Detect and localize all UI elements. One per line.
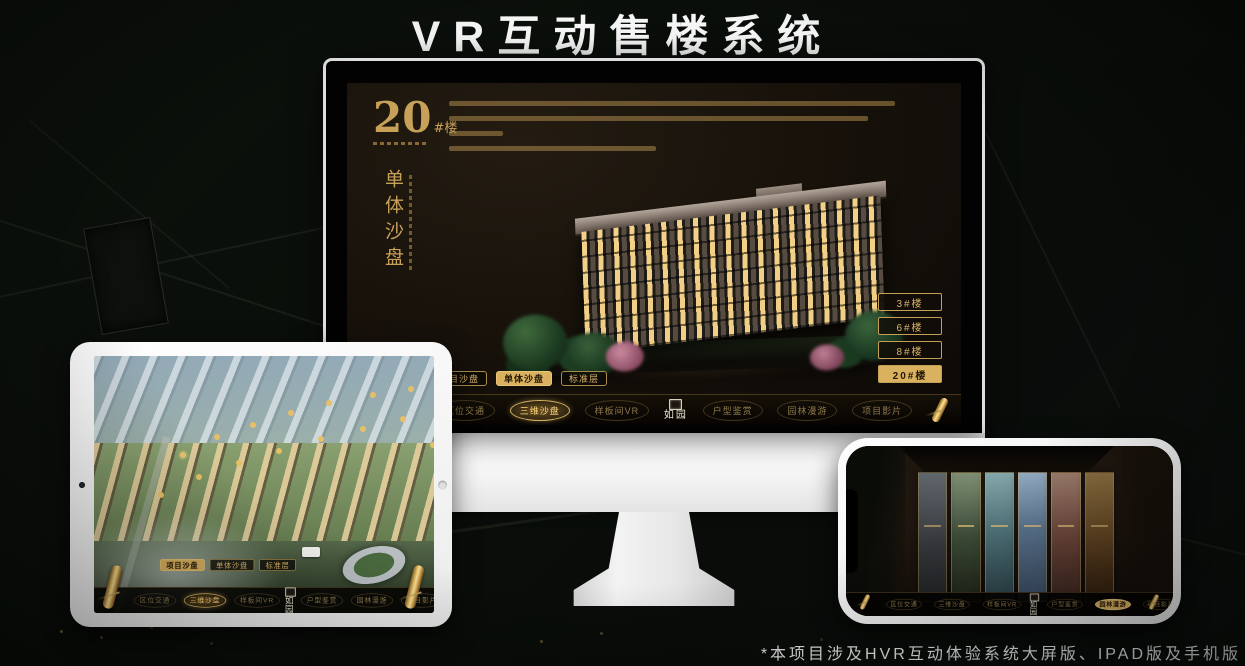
poster-canvas: VR互动售楼系统 20#楼 单体沙盘 [0, 0, 1245, 666]
background-plaque [83, 217, 169, 335]
scroll-tube [102, 564, 123, 609]
scroll-menu-icon[interactable] [1146, 595, 1162, 610]
interior-beam-silhouette [898, 446, 1114, 472]
nav-item-project-film[interactable]: 项目影片 [852, 400, 912, 421]
subtab-standard-floor[interactable]: 标准层 [259, 559, 296, 571]
sales-app-tablet-screen: 项目沙盘 单体沙盘 标准层 区位交通 三维沙盘 样板间VR 如园 户型鉴赏 园林… [94, 356, 434, 613]
gallery-panel[interactable] [985, 472, 1014, 602]
nav-item-3d-sandtable[interactable]: 三维沙盘 [934, 599, 970, 610]
floor-button-8[interactable]: 8#楼 [878, 341, 942, 359]
logo-seal-icon [669, 399, 682, 410]
floor-button-6[interactable]: 6#楼 [878, 317, 942, 335]
nav-item-floorplan[interactable]: 户型鉴赏 [1047, 599, 1083, 610]
scroll-menu-icon[interactable] [98, 565, 128, 609]
building-number: 20 [373, 93, 431, 142]
brand-logo[interactable]: 如园 [285, 587, 296, 613]
phone-device: 区位交通 三维沙盘 样板间VR 如园 户型鉴赏 园林漫游 项目影片 [838, 438, 1181, 624]
sales-app-phone-screen: 区位交通 三维沙盘 样板间VR 如园 户型鉴赏 园林漫游 项目影片 [846, 446, 1173, 616]
scroll-menu-icon[interactable] [857, 595, 873, 610]
background-city-lights [60, 630, 63, 633]
floor-tooltip-tag [302, 547, 320, 557]
gallery-panel[interactable] [1085, 472, 1114, 602]
gallery-panel[interactable] [1051, 472, 1080, 602]
subtab-standard-floor[interactable]: 标准层 [561, 371, 607, 386]
monitor-stand [551, 512, 757, 606]
interior-right-silhouette [1121, 446, 1173, 616]
tablet-home-button[interactable] [438, 480, 447, 489]
tablet-device: 项目沙盘 单体沙盘 标准层 区位交通 三维沙盘 样板间VR 如园 户型鉴赏 园林… [70, 342, 452, 627]
phone-notch [846, 489, 858, 573]
nav-item-garden-roam[interactable]: 园林漫游 [777, 400, 837, 421]
main-nav-bar: 区位交通 三维沙盘 样板间VR 如园 户型鉴赏 园林漫游 项目影片 [846, 592, 1173, 616]
tablet-camera-icon [79, 482, 85, 488]
subtab-single-sandtable[interactable]: 单体沙盘 [496, 371, 552, 386]
section-title-vertical: 单体沙盘 [380, 169, 407, 273]
scroll-tube [404, 564, 425, 609]
logo-name: 如园 [1030, 602, 1039, 616]
scroll-menu-icon[interactable] [927, 398, 953, 422]
subtab-single-sandtable[interactable]: 单体沙盘 [210, 559, 255, 571]
page-title: VR互动售楼系统 [0, 2, 1245, 64]
gallery-panel[interactable] [951, 472, 980, 602]
footnote-text: *本项目涉及HVR互动体验系统大屏版、IPAD版及手机版 [0, 640, 1241, 664]
floor-button-3[interactable]: 3#楼 [878, 293, 942, 311]
logo-name: 如园 [285, 597, 296, 613]
logo-name: 如园 [664, 411, 688, 421]
logo-seal-icon [285, 587, 296, 596]
background-road-line [979, 121, 1121, 409]
nav-item-3d-sandtable[interactable]: 三维沙盘 [510, 400, 570, 421]
floor-button-20[interactable]: 20#楼 [878, 365, 942, 383]
subtab-group: 项目沙盘 单体沙盘 标准层 [160, 559, 296, 571]
building-3d-render [492, 174, 898, 378]
logo-seal-icon [1030, 593, 1039, 601]
building-number-badges [180, 452, 186, 458]
nav-item-showroom-vr[interactable]: 样板间VR [585, 400, 650, 421]
nav-item-showroom-vr[interactable]: 样板间VR [234, 593, 280, 607]
subtab-project-sandtable[interactable]: 项目沙盘 [160, 559, 205, 571]
brand-logo[interactable]: 如园 [1030, 593, 1039, 616]
heading-caption-marks [373, 142, 427, 145]
main-nav-bar: 区位交通 三维沙盘 样板间VR 如园 户型鉴赏 园林漫游 项目影片 [94, 587, 434, 613]
building-heading: 20#楼 [373, 97, 457, 145]
scene-gallery [918, 472, 1114, 602]
subtab-group: 项目沙盘 单体沙盘 标准层 [431, 371, 607, 386]
brand-logo[interactable]: 如园 [664, 399, 688, 421]
section-title-caption-marks [409, 175, 412, 271]
scroll-menu-icon[interactable] [400, 565, 430, 609]
nav-item-garden-roam[interactable]: 园林漫游 [1095, 599, 1131, 610]
nav-item-location[interactable]: 区位交通 [886, 599, 922, 610]
nav-item-floorplan[interactable]: 户型鉴赏 [301, 593, 344, 607]
floor-button-group: 3#楼 6#楼 8#楼 20#楼 [878, 293, 942, 383]
nav-item-floorplan[interactable]: 户型鉴赏 [703, 400, 763, 421]
gallery-panel[interactable] [1018, 472, 1047, 602]
nav-item-showroom-vr[interactable]: 样板间VR [983, 599, 1022, 610]
nav-item-location[interactable]: 区位交通 [134, 593, 177, 607]
gallery-panel[interactable] [918, 472, 947, 602]
nav-item-3d-sandtable[interactable]: 三维沙盘 [184, 593, 227, 607]
nav-item-garden-roam[interactable]: 园林漫游 [351, 593, 394, 607]
description-text-lines [449, 101, 899, 161]
